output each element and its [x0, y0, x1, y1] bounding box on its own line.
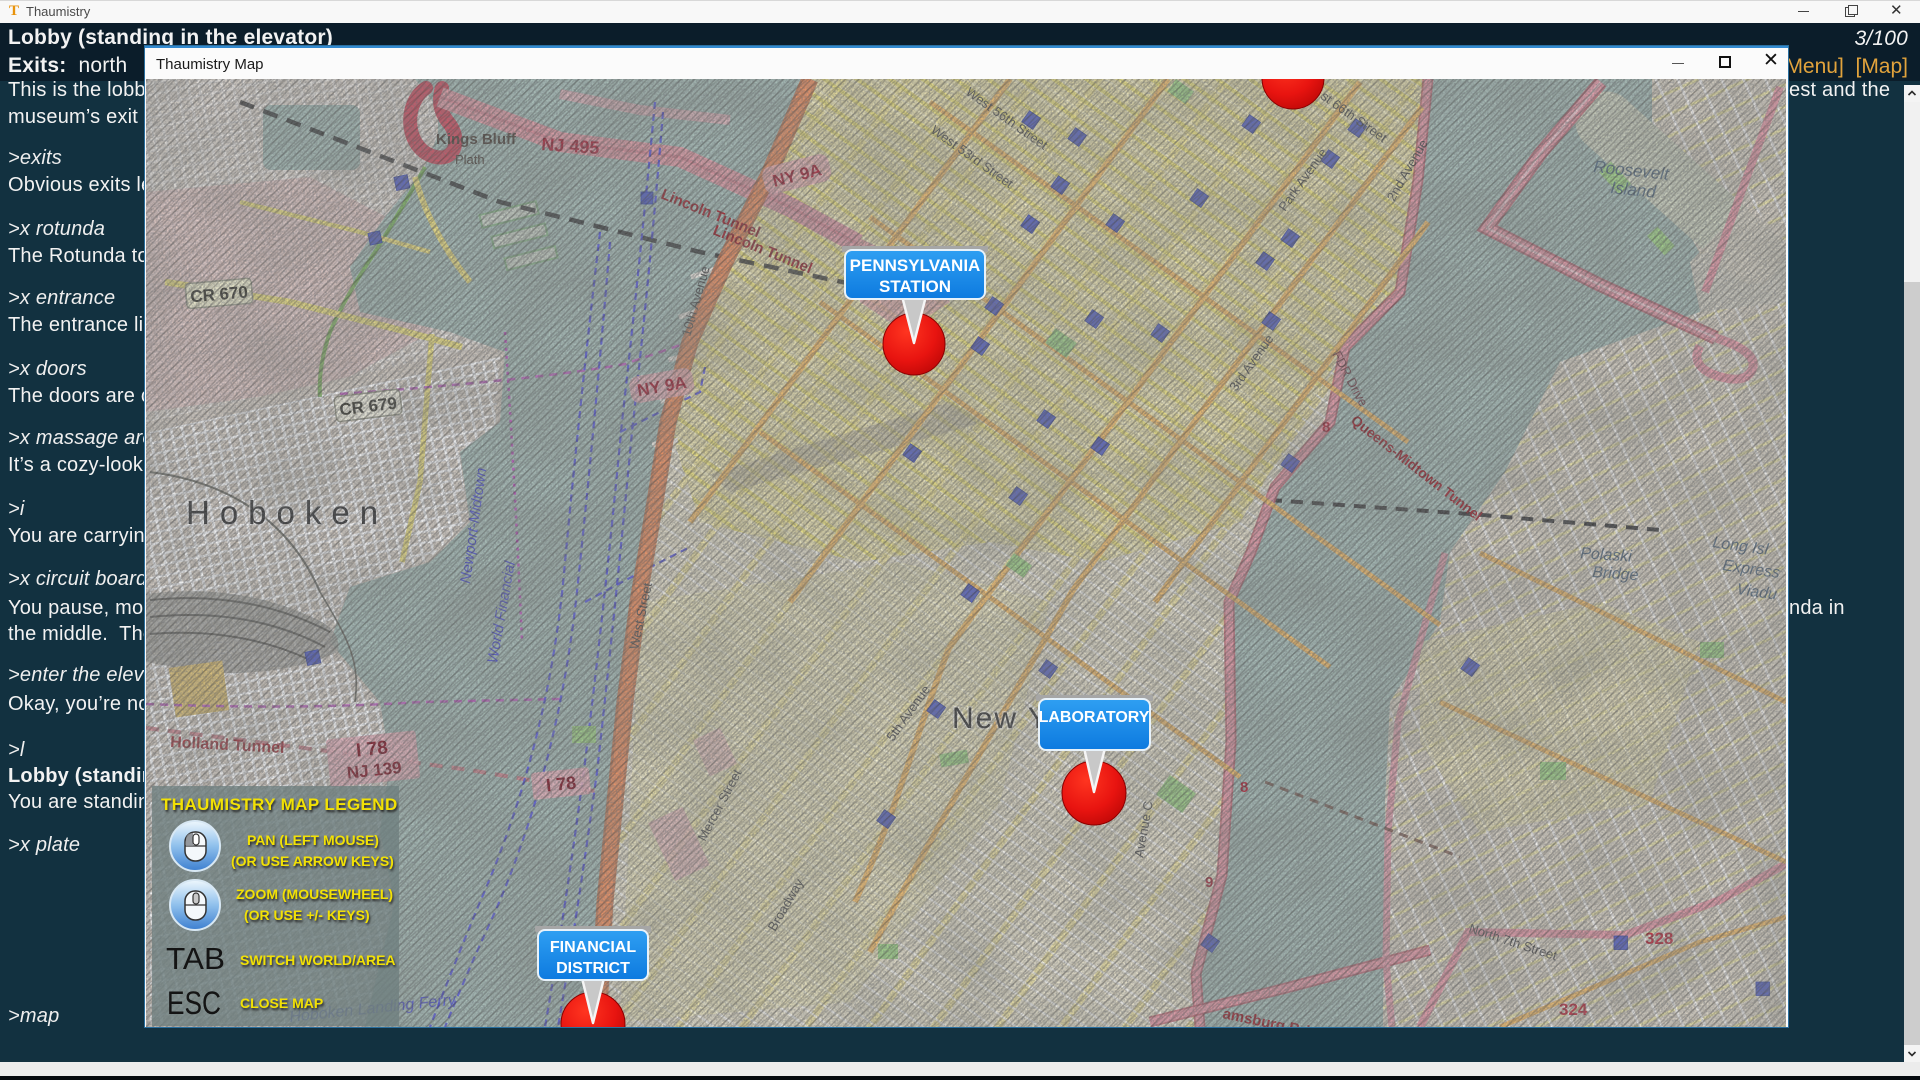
svg-text:SWITCH WORLD/AREA: SWITCH WORLD/AREA: [240, 952, 396, 968]
svg-text:DISTRICT: DISTRICT: [556, 960, 630, 977]
svg-text:(OR USE ARROW KEYS): (OR USE ARROW KEYS): [231, 853, 394, 869]
svg-text:STATION: STATION: [879, 277, 951, 296]
svg-text:THAUMISTRY MAP LEGEND: THAUMISTRY MAP LEGEND: [161, 795, 398, 814]
svg-text:TAB: TAB: [166, 941, 225, 976]
svg-text:ESC: ESC: [167, 985, 221, 1021]
svg-text:FINANCIAL: FINANCIAL: [550, 939, 636, 956]
svg-text:ZOOM (MOUSEWHEEL): ZOOM (MOUSEWHEEL): [236, 886, 393, 902]
svg-text:PENNSYLVANIA: PENNSYLVANIA: [850, 256, 981, 275]
svg-text:PAN (LEFT MOUSE): PAN (LEFT MOUSE): [247, 832, 379, 848]
svg-text:(OR USE +/- KEYS): (OR USE +/- KEYS): [244, 907, 370, 923]
svg-text:LABORATORY: LABORATORY: [1039, 709, 1150, 726]
svg-text:CLOSE MAP: CLOSE MAP: [240, 995, 323, 1011]
